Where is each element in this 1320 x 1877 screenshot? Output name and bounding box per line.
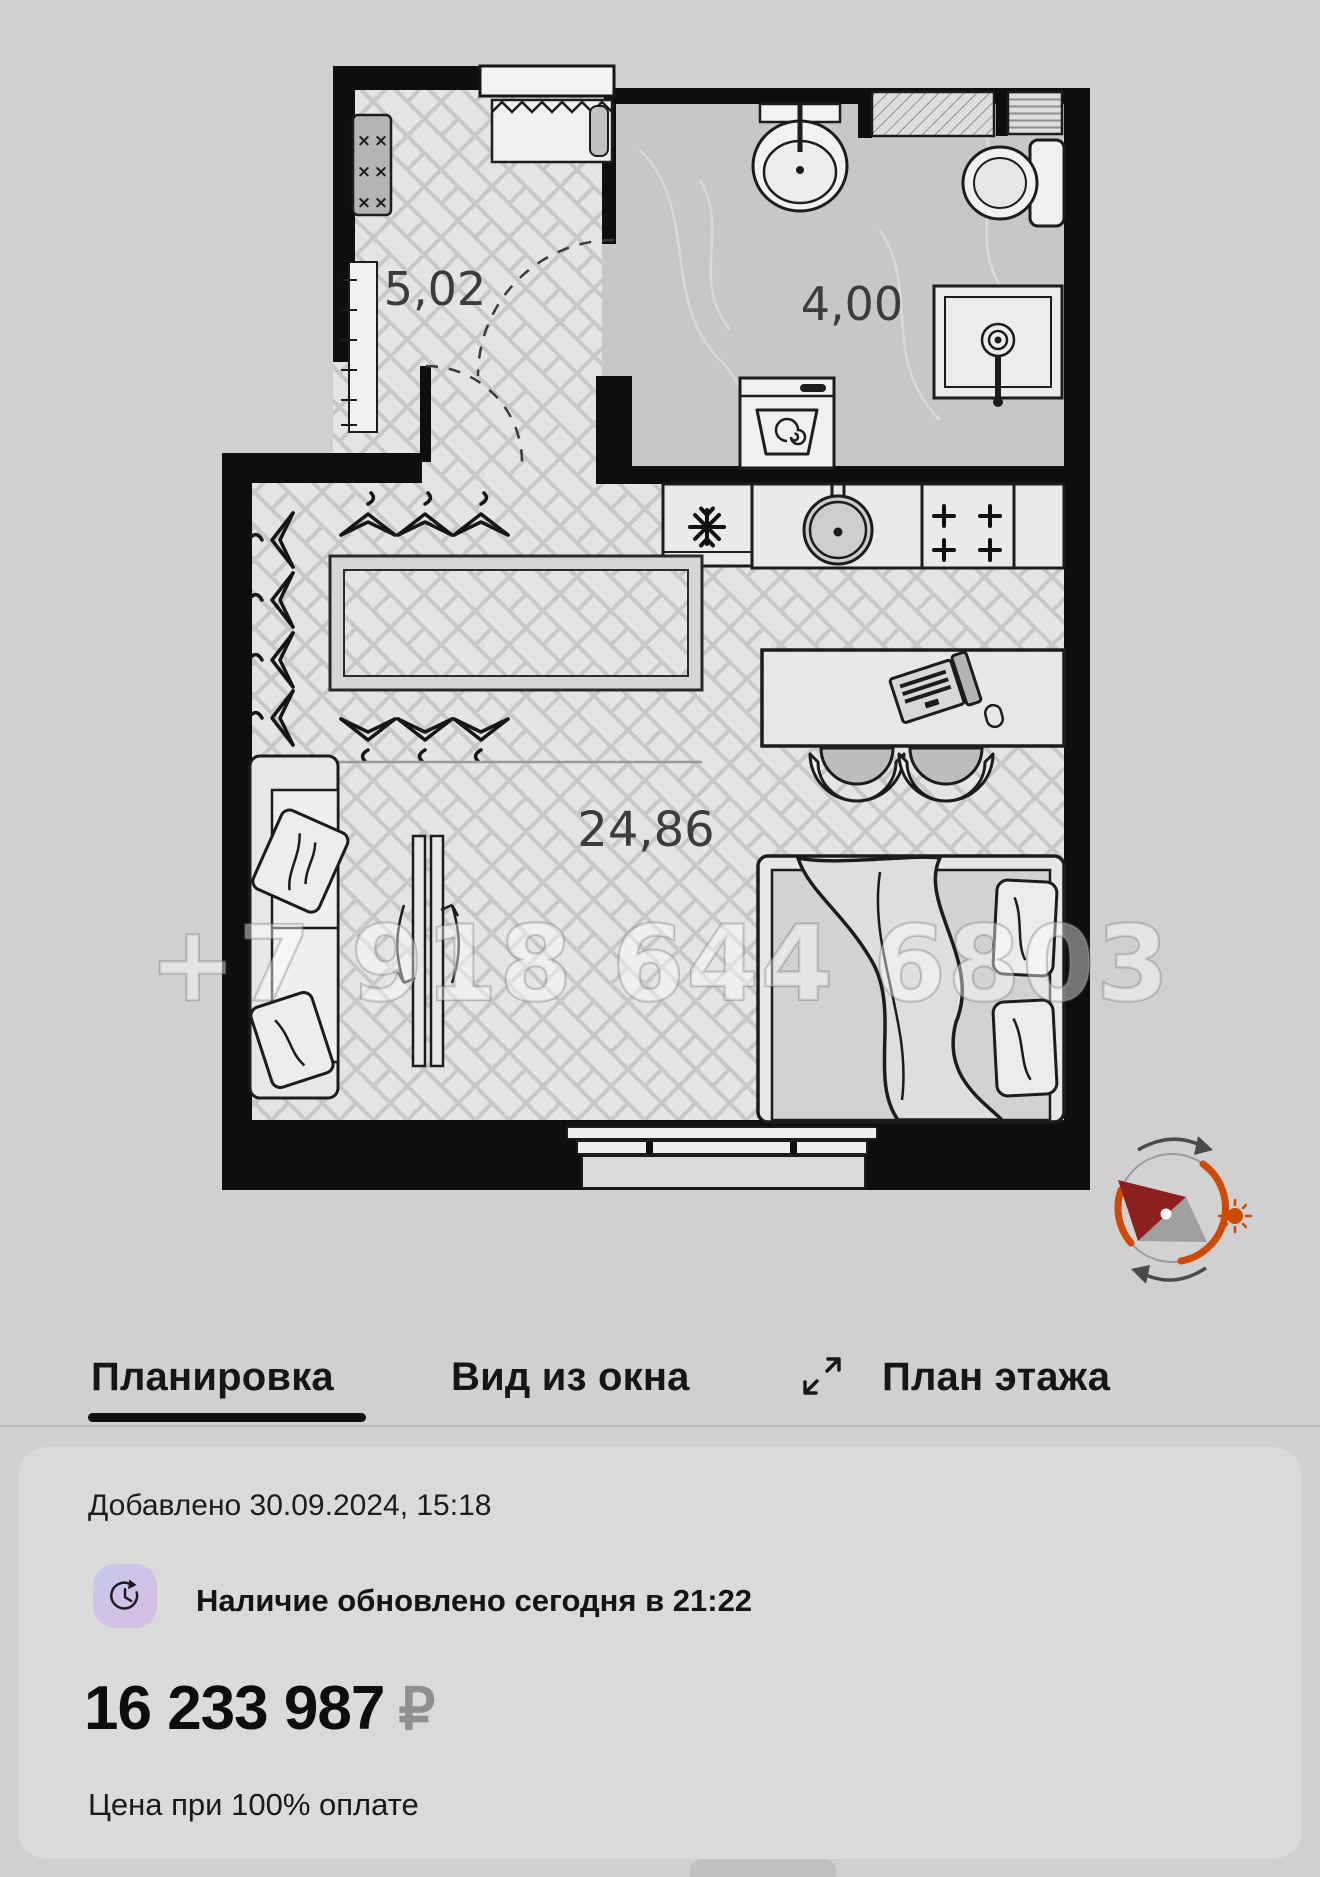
added-date-text: Добавлено 30.09.2024, 15:18 [88, 1489, 491, 1523]
hallway-area-label: 5,02 [384, 262, 486, 316]
compass-icon[interactable] [1118, 1136, 1251, 1284]
shower [934, 286, 1062, 407]
info-card: Добавлено 30.09.2024, 15:18 Наличие обно… [18, 1447, 1302, 1859]
price-row: 16 233 987 ₽ [84, 1673, 435, 1744]
kitchen-counter [663, 484, 1064, 568]
balcony-door [567, 1127, 877, 1188]
svg-text:×: × [357, 131, 371, 151]
fridge-icon [690, 509, 724, 546]
svg-text:×: × [374, 162, 388, 182]
sun-icon [1219, 1200, 1251, 1232]
bottom-sheet-handle[interactable] [690, 1859, 836, 1877]
toilet [963, 140, 1064, 226]
expand-icon[interactable] [798, 1352, 846, 1400]
shower-shelf-icon [872, 92, 1062, 136]
shoe-cabinet: ×× ×× ×× [353, 115, 391, 215]
bathroom-area-label: 4,00 [801, 277, 903, 331]
listing-page: ×× ×× ×× [0, 0, 1320, 1877]
living-area-label: 24,86 [577, 802, 714, 858]
hall-bench [492, 100, 612, 162]
tab-window-view[interactable]: Вид из окна [451, 1353, 690, 1401]
svg-text:×: × [357, 193, 371, 213]
tabs-divider [0, 1425, 1320, 1427]
entry-window [480, 66, 614, 96]
washing-machine [740, 378, 834, 468]
svg-text:×: × [357, 162, 371, 182]
desk [762, 650, 1064, 746]
clock-refresh-icon [106, 1577, 144, 1615]
watermark-phone: +7 918 644 6803 [149, 903, 1171, 1025]
availability-text: Наличие обновлено сегодня в 21:22 [196, 1583, 752, 1619]
active-tab-underline [88, 1413, 366, 1422]
tab-layout[interactable]: Планировка [91, 1353, 334, 1401]
floor-plan-svg: ×× ×× ×× [0, 0, 1320, 1340]
bath-sink [753, 104, 847, 211]
svg-text:×: × [374, 131, 388, 151]
tab-floor-plan[interactable]: План этажа [882, 1353, 1110, 1401]
currency-symbol: ₽ [398, 1675, 435, 1743]
price-value: 16 233 987 [84, 1673, 384, 1744]
availability-badge [93, 1564, 157, 1628]
price-note: Цена при 100% оплате [88, 1787, 419, 1823]
svg-text:×: × [374, 193, 388, 213]
